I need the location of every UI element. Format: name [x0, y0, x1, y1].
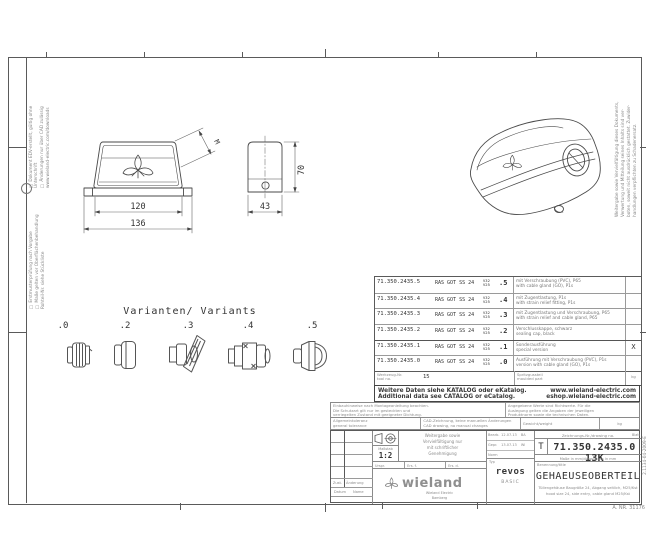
variant-description: mit Verschraubung (PVC), P65with cable g…: [513, 277, 625, 293]
svg-text:70: 70: [297, 165, 307, 175]
side-view: [248, 136, 282, 198]
fine-print-right: Angegebene Werte sind Richtwerte. Für di…: [505, 403, 639, 417]
part-number: 71.350.2435.4: [375, 294, 435, 308]
size-code: V32V25: [483, 294, 499, 308]
revision-header-1: Zust. Änderung: [331, 478, 373, 487]
dim-120: 120: [95, 197, 182, 216]
drawing-no-note: Maße in mm/dimensions in mm: [535, 455, 641, 462]
revision-table: Zust. Änderung Datum Name: [331, 431, 373, 504]
frame-tick: [46, 52, 47, 57]
footer-label: Werkzeug-Nr.tool no.: [375, 371, 421, 385]
table-row: 71.350.2435.0 RAS GOT SS 24 V32V25 .0 Au…: [375, 355, 641, 371]
type-box: Typ revos BASIC: [487, 459, 535, 504]
corner-note: A. NR. 31176: [593, 505, 645, 511]
part-number: 71.350.2435.3: [375, 309, 435, 324]
general-tolerance-row: Allgemeintoleranzgeneral tolerance CAD-Z…: [330, 417, 640, 430]
scale-box: Maßstab 1:2: [373, 446, 399, 462]
wieland-logo-mark: [123, 155, 153, 178]
wieland-logo-mark-iso: [503, 155, 522, 170]
notice-line: Weitergabe sowie Vervielfältigung dieses…: [615, 72, 620, 217]
projection-symbol-box: [373, 431, 399, 446]
size-code: V32V25: [483, 277, 499, 293]
title-block: Zust. Änderung Datum Name Maßstab 1:2 We…: [330, 430, 640, 503]
variant-description: mit Zugentlastung und Verschraubung, P65…: [513, 309, 625, 324]
table-row: 71.350.2435.1 RAS GOT SS 24 V32V25 .1 So…: [375, 340, 641, 355]
note-line: □ Dokument EDV-erstellt, gültig ohne Unt…: [29, 84, 39, 188]
variant-suffix: .3: [499, 309, 513, 324]
variant-label-2: .2: [115, 321, 135, 331]
footer-unit: kg: [625, 371, 641, 385]
note-line: □ Erstmusterprüfung nach Vorgabe: [29, 205, 34, 309]
catalog-notice: Weitere Daten siehe KATALOG oder eKatalo…: [374, 385, 640, 402]
variant-label-5: .5: [302, 321, 322, 331]
notice-line: Verwertung und Mitteilung seines Inhalts…: [621, 72, 626, 217]
frame-tick: [144, 52, 145, 57]
size-code: V32V25: [483, 325, 499, 340]
variant-suffix: .0: [499, 356, 513, 371]
first-angle-projection-icon: [373, 431, 399, 446]
variant-suffix: .2: [499, 325, 513, 340]
catalog-note-en: Additional data see CATALOG or eCatalog.: [378, 394, 515, 400]
mark-cell: [625, 277, 641, 293]
isometric-view-drawing: [455, 112, 605, 227]
size-code: V32V25: [483, 356, 499, 371]
cad-note-cell: CAD-Zeichnung, keine manuellen Änderunge…: [420, 418, 519, 429]
document-code: 2.1134-04-2009-E: [643, 436, 648, 475]
note-line: □ Änderungen nur über CAD zulässig: [40, 84, 45, 188]
note-line: Rohteil-Nr. siehe Stückliste: [41, 205, 46, 309]
logo-subline: Bamberg: [393, 496, 486, 501]
left-margin-note-bottom: □ Erstmusterprüfung nach Vorgabe □ Maße …: [29, 205, 46, 309]
variants-title: Varianten/ Variants: [105, 306, 275, 317]
variant-2-drawing: [110, 336, 140, 374]
mark-cell: [625, 309, 641, 324]
variant-description: Sonderausführungspecial version: [513, 341, 625, 355]
revision-header-2: Datum Name: [331, 487, 373, 496]
general-tolerance-cell: Allgemeintoleranzgeneral tolerance: [331, 418, 420, 429]
type-code: RAS GOT SS 24: [435, 277, 483, 293]
table-row: 71.350.2435.4 RAS GOT SS 24 V32V25 .4 mi…: [375, 293, 641, 308]
type-code: RAS GOT SS 24: [435, 341, 483, 355]
type-code: RAS GOT SS 24: [435, 325, 483, 340]
frame-tick: [438, 52, 439, 57]
type-code: RAS GOT SS 24: [435, 294, 483, 308]
size-code: V32V25: [483, 341, 499, 355]
approvals-grid: Bearb. 12.07.13 BA Gepr. 13.07.13 Wi Nor…: [487, 431, 535, 459]
orthographic-views-drawing: M 120 136 43: [75, 125, 315, 240]
bottom-nub: [555, 206, 564, 213]
variant-description: mit Zugentlastung, P1swith strain relief…: [513, 294, 625, 308]
variants-table: 71.350.2435.5 RAS GOT SS 24 V32V25 .5 mi…: [374, 276, 642, 372]
frame-zone-divider: [8, 332, 26, 333]
mark-cell: [625, 356, 641, 371]
variant-description: Ausführung mit Verschraubung (PVC), P1sv…: [513, 356, 625, 371]
table-row: 71.350.2435.3 RAS GOT SS 24 V32V25 .3 mi…: [375, 308, 641, 324]
variant-suffix: .1: [499, 341, 513, 355]
mark-cell: X: [625, 341, 641, 355]
frame-left-inner-line: [26, 57, 27, 503]
size-code: V32V25: [483, 309, 499, 324]
part-number: 71.350.2435.1: [375, 341, 435, 355]
type-code: RAS GOT SS 24: [435, 356, 483, 371]
part-number: 71.350.2435.0: [375, 356, 435, 371]
catalog-url-2: eshop.wieland-electric.com: [546, 394, 636, 400]
note-line: www.wieland-electric.com/downloads: [46, 84, 51, 188]
dim-angled-m: M: [175, 128, 221, 167]
notice-line: boten, soweit nicht ausdrücklich gestatt…: [627, 72, 632, 217]
scale-value: 1:2: [373, 451, 398, 460]
variant-5-drawing: [290, 336, 332, 376]
front-view: [84, 142, 192, 196]
svg-text:120: 120: [130, 202, 145, 212]
left-margin-note-top: □ Dokument EDV-erstellt, gültig ohne Unt…: [29, 84, 51, 188]
svg-text:136: 136: [130, 219, 145, 229]
frame-zone-divider: [8, 147, 26, 148]
frame-tick: [242, 52, 243, 57]
notice-line: handlungen verpflichten zu Schadenersatz…: [633, 72, 638, 217]
frame-centering-circle: [21, 183, 32, 194]
variant-4-drawing: [226, 336, 272, 376]
fine-print-block: Einbauhinweise nach Montageanleitung bea…: [330, 402, 640, 417]
protection-note-box: Weitergabe sowie Vervielfältigung nur mi…: [399, 431, 487, 462]
table-footer-row: Werkzeug-Nr.tool no. 15 Spritzgussteilmo…: [374, 371, 642, 386]
table-row: 71.350.2435.2 RAS GOT SS 24 V32V25 .2 Ve…: [375, 324, 641, 340]
variant-suffix: .5: [499, 277, 513, 293]
variant-description: Verschlusskappe, schwarzsealing cap, bla…: [513, 325, 625, 340]
frame-tick: [180, 503, 181, 510]
drawing-number: 71.350.2435.0 13K: [548, 439, 641, 454]
part-number: 71.350.2435.5: [375, 277, 435, 293]
variant-suffix: .4: [499, 294, 513, 308]
footer-note: Spritzgussteilmoulded part: [514, 371, 625, 385]
type-series: BASIC: [487, 477, 534, 485]
note-line: □ Maße gelten vor Oberflächenbehandlung: [35, 205, 40, 309]
part-number: 71.350.2435.2: [375, 325, 435, 340]
variant-label-3: .3: [178, 321, 198, 331]
t-marker: T: [535, 439, 548, 454]
document-code-vertical: 2.1134-04-2009-E: [643, 436, 648, 500]
drawing-no-row: T 71.350.2435.0 13K: [535, 439, 641, 455]
mark-cell: [625, 325, 641, 340]
dim-70: 70: [284, 142, 307, 192]
variant-3-drawing: [166, 334, 210, 374]
mark-cell: [625, 294, 641, 308]
svg-text:M: M: [212, 138, 221, 145]
variant-label-0: .0: [53, 321, 73, 331]
type-name: revos: [487, 464, 534, 477]
weight-unit-cell: kg: [599, 418, 639, 429]
table-row: 71.350.2435.5 RAS GOT SS 24 V32V25 .5 mi…: [375, 277, 641, 293]
wieland-flower-icon: [385, 477, 398, 490]
weight-label-cell: Gewicht/weight: [520, 418, 599, 429]
frame-tick: [536, 52, 537, 57]
footer-value: 15: [421, 371, 514, 385]
copyright-notice-vertical: Weitergabe sowie Vervielfältigung dieses…: [615, 72, 638, 217]
fine-print-left: Einbauhinweise nach Montageanleitung bea…: [331, 403, 505, 417]
variant-0-drawing: [64, 336, 94, 374]
logo-box: wieland Wieland Electric Bamberg: [373, 469, 487, 504]
svg-text:43: 43: [260, 202, 270, 212]
type-code: RAS GOT SS 24: [435, 309, 483, 324]
part-title: GEHAEUSEOBERTEIL: [535, 468, 641, 484]
wieland-logo-text: wieland: [402, 476, 463, 491]
origin-row: Urspr. Ers. f. Ers. d.: [373, 462, 487, 469]
drawing-sheet: □ Dokument EDV-erstellt, gültig ohne Unt…: [0, 0, 650, 560]
drawing-no-header: Zeichnungs-Nr./drawing no. Blatt: [535, 431, 641, 439]
variant-label-4: .4: [238, 321, 258, 331]
sheet-label: Blatt: [632, 433, 640, 437]
part-title-sub: Tüllengehäuse Baugröße 24, Abgang seitli…: [535, 485, 641, 504]
frame-center-mark-top: [325, 49, 326, 57]
frame-zone-tick: [640, 147, 646, 148]
frame-center-mark-bottom: [325, 503, 326, 512]
